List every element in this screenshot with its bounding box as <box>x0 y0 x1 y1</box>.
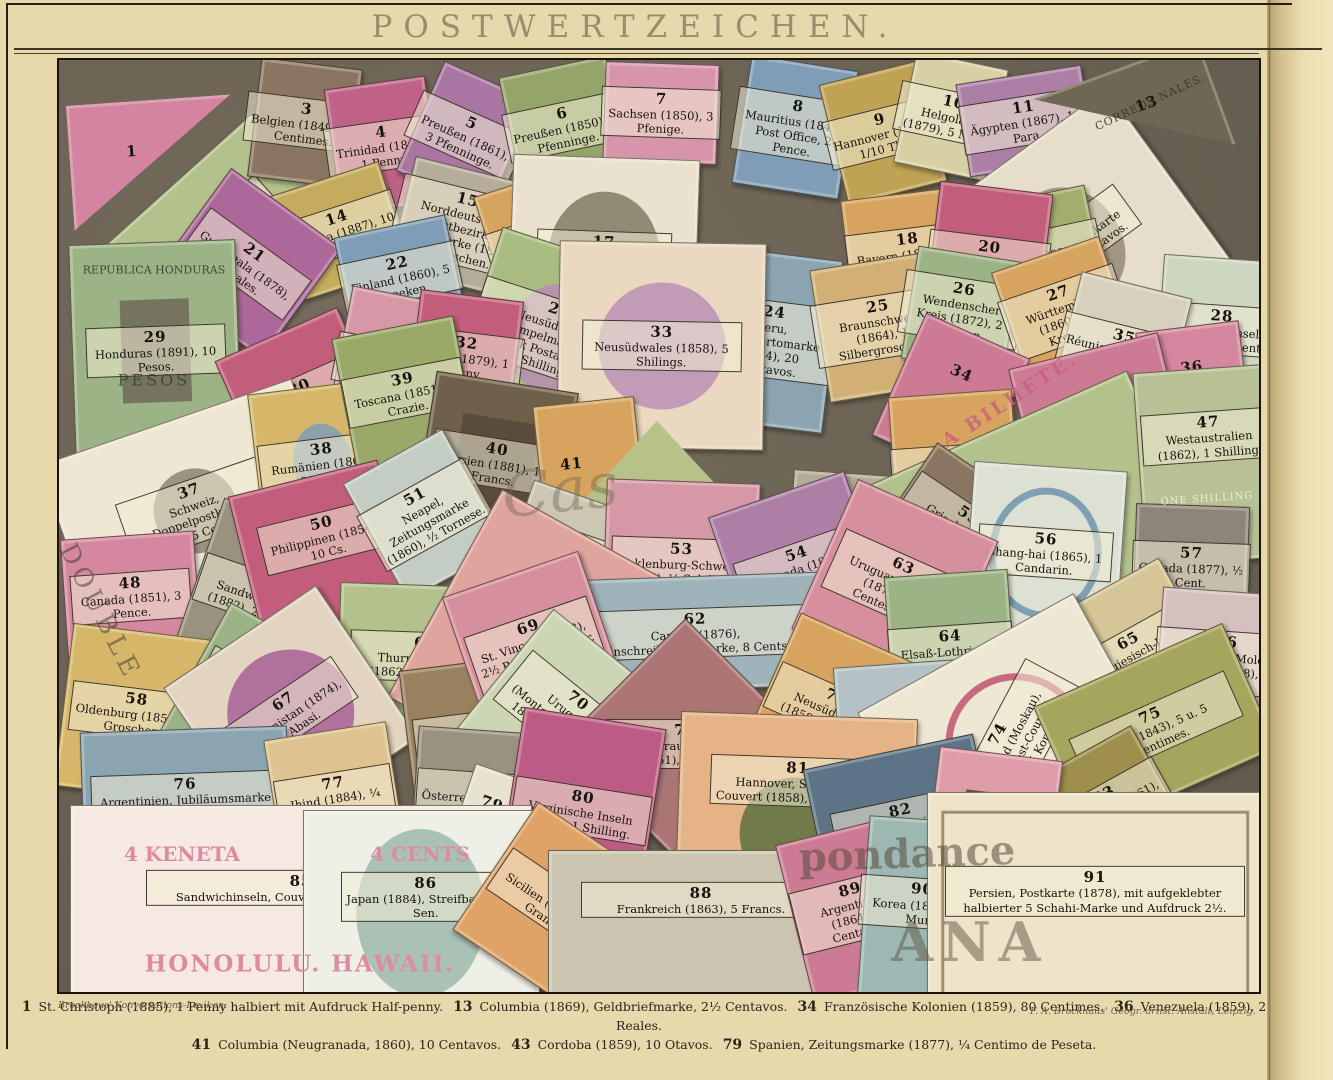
scan-border-top <box>6 3 1292 5</box>
stamp-caption: Frankreich (1863), 5 Francs. <box>586 902 816 916</box>
plate-title: POSTWERTZEICHEN. <box>0 9 1270 45</box>
stamp-91: 91Persien, Postkarte (1878), mit aufgekl… <box>927 792 1262 995</box>
footnote-number: 41 <box>182 1037 214 1053</box>
stamp-caption: Persien, Postkarte (1878), mit aufgekleb… <box>950 886 1240 914</box>
imprint-printer: F. A. Brockhaus' Geogr.-artist. Anstalt,… <box>1030 1006 1256 1017</box>
footnote-text: Cordoba (1859), 10 Otavos. <box>534 1037 713 1052</box>
stamp-number: 34 <box>948 360 976 386</box>
page-fold-shadow <box>1268 0 1271 1080</box>
footnote-text: Columbia (Neugranada, 1860), 10 Centavos… <box>214 1037 501 1052</box>
stamp-number: 41 <box>559 454 584 475</box>
stamp-number: 33 <box>586 321 736 342</box>
stamp-number: 88 <box>586 884 816 902</box>
stamp-collage: 12Hannover, Postanweisung (1866), 2 Gros… <box>57 58 1261 994</box>
stamp-7: 7Sachsen (1850), 3 Pfenige. <box>602 61 719 165</box>
imprint-publisher: Brockhaus' Konversations-Lexikon. <box>58 1000 227 1011</box>
footnote-number: 1 <box>12 999 35 1015</box>
stamp-caption: Neusüdwales (1858), 5 Shilings. <box>586 339 736 370</box>
scan-border-left <box>6 3 8 1049</box>
footnote-line-2: 41 Columbia (Neugranada, 1860), 10 Centa… <box>0 1035 1278 1055</box>
footnote-number: 79 <box>713 1037 745 1053</box>
plate-page: POSTWERTZEICHEN. 12Hannover, Postanweisu… <box>0 0 1333 1080</box>
footnote-number: 13 <box>443 999 475 1015</box>
stamp-number: 91 <box>950 868 1240 886</box>
title-rule-bottom <box>14 53 1259 54</box>
page-edge <box>1267 0 1333 1080</box>
footnote-text: Columbia (1869), Geldbriefmarke, 2½ Cent… <box>476 999 788 1014</box>
stamp-number: 1 <box>125 141 138 160</box>
footnote-number: 34 <box>788 999 820 1015</box>
footnote-number: 43 <box>501 1037 533 1053</box>
footnote-text: Spanien, Zeitungsmarke (1877), ¼ Centimo… <box>745 1037 1096 1052</box>
stamp-caption: Honduras (1891), 10 Pesos. <box>90 343 221 376</box>
stamp-caption: Sachsen (1850), 3 Pfenige. <box>605 106 716 138</box>
stamp-number: 13 <box>1132 91 1160 116</box>
title-rule-top <box>14 48 1322 50</box>
